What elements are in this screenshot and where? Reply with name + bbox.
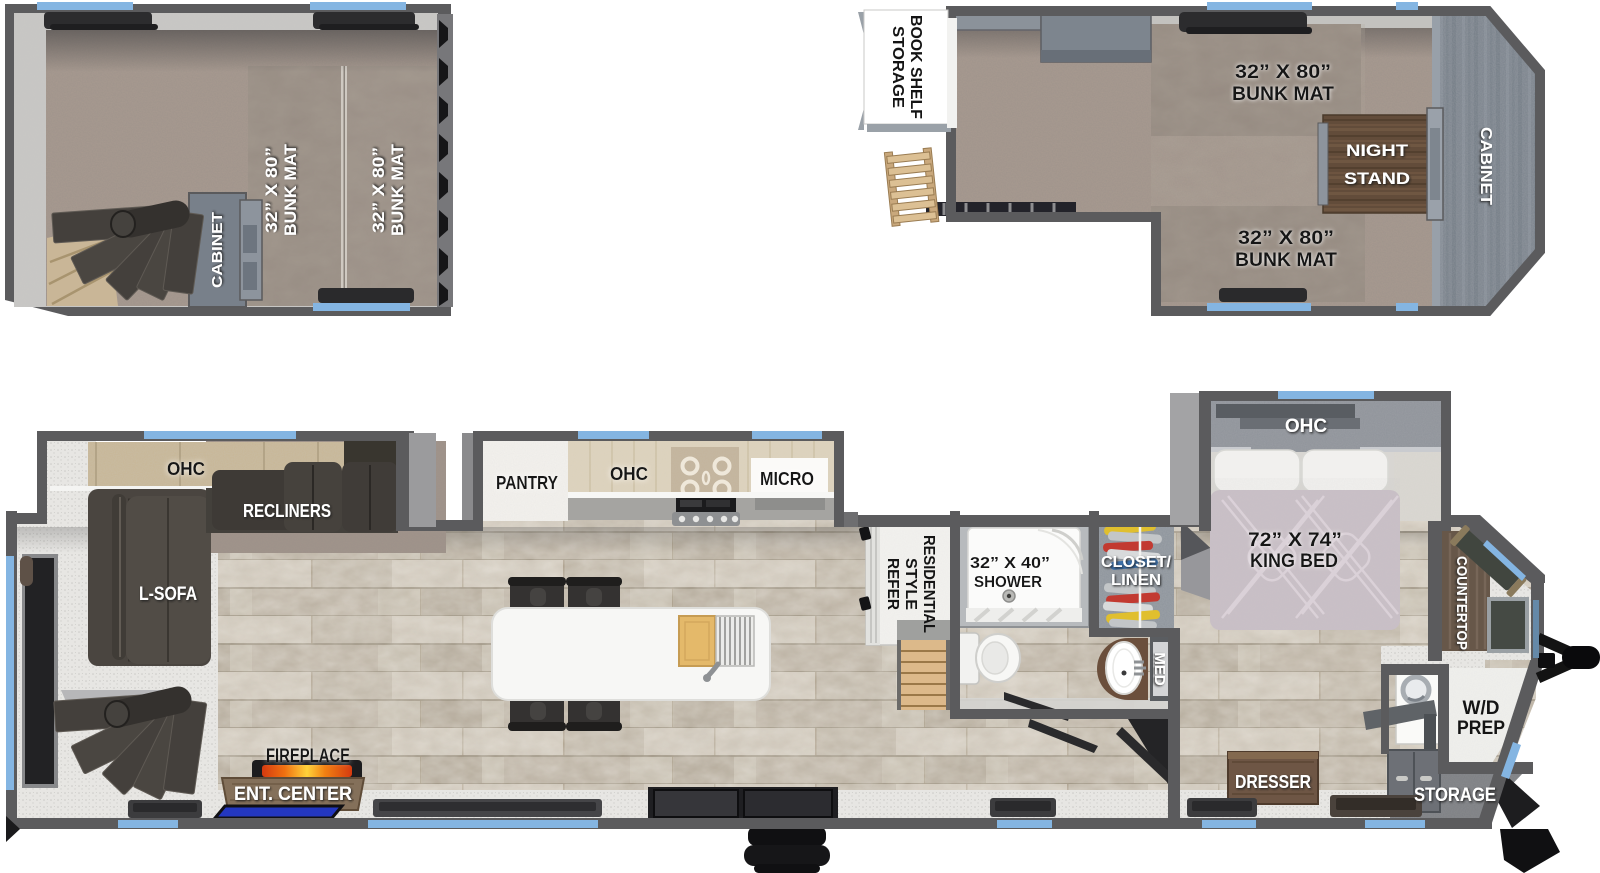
svg-text:MICRO: MICRO [760,469,814,489]
svg-text:MED: MED [1151,652,1168,686]
svg-text:OHC: OHC [1285,416,1328,437]
svg-text:32” X 80”: 32” X 80” [369,147,388,233]
svg-text:STORAGE: STORAGE [1414,785,1496,806]
svg-text:RESIDENTIAL: RESIDENTIAL [920,535,937,633]
svg-text:CABINET: CABINET [209,212,226,288]
svg-text:32” X 40”: 32” X 40” [970,555,1050,572]
svg-text:BUNK MAT: BUNK MAT [281,143,300,236]
svg-text:STORAGE: STORAGE [889,26,906,108]
svg-text:W/D: W/D [1463,698,1500,719]
svg-text:KING BED: KING BED [1250,551,1338,572]
svg-text:BUNK MAT: BUNK MAT [388,143,407,236]
svg-text:RECLINERS: RECLINERS [243,501,331,521]
svg-text:STAND: STAND [1344,169,1410,188]
svg-text:32” X 80”: 32” X 80” [1235,62,1331,83]
svg-text:NIGHT: NIGHT [1346,141,1409,160]
svg-text:ENT. CENTER: ENT. CENTER [234,784,352,805]
svg-text:REFER: REFER [884,558,901,610]
svg-text:SHOWER: SHOWER [974,574,1042,591]
svg-text:PANTRY: PANTRY [496,473,558,493]
svg-text:32” X 80”: 32” X 80” [262,147,281,233]
svg-text:COUNTERTOP: COUNTERTOP [1453,556,1470,650]
svg-text:FIREPLACE: FIREPLACE [266,746,350,767]
svg-text:DRESSER: DRESSER [1235,772,1311,792]
svg-text:BUNK MAT: BUNK MAT [1235,250,1337,271]
svg-text:LINEN: LINEN [1111,572,1161,589]
svg-text:32” X 80”: 32” X 80” [1238,228,1334,249]
svg-text:CABINET: CABINET [1477,127,1494,205]
svg-text:CLOSET/: CLOSET/ [1101,554,1172,571]
svg-text:PREP: PREP [1457,718,1505,739]
svg-text:BUNK MAT: BUNK MAT [1232,84,1334,105]
svg-text:STYLE: STYLE [902,558,919,610]
svg-text:OHC: OHC [167,459,205,479]
svg-text:72” X 74”: 72” X 74” [1248,530,1342,551]
svg-text:L-SOFA: L-SOFA [139,584,197,605]
svg-text:OHC: OHC [610,464,648,484]
svg-text:BOOK SHELF: BOOK SHELF [907,15,924,119]
